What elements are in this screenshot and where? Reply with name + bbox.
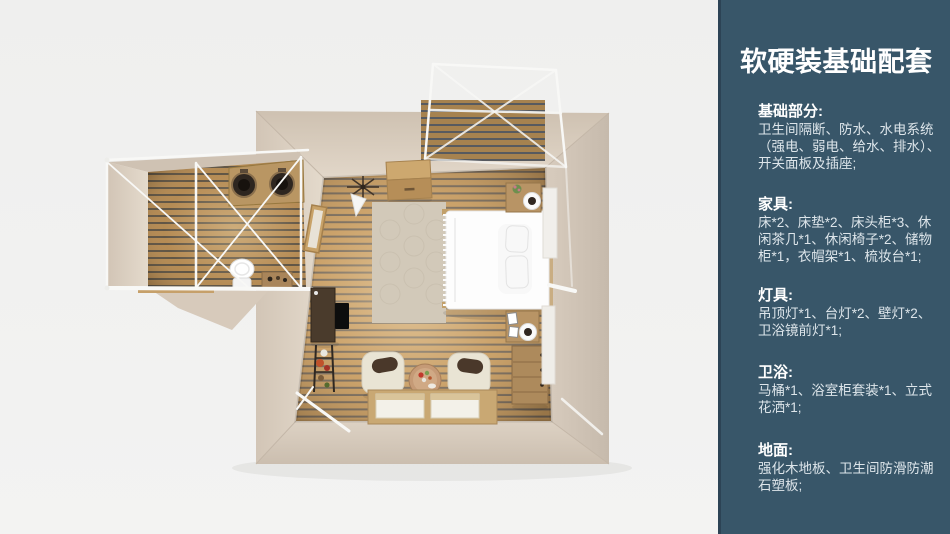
section-heading: 灯具: [758, 287, 940, 305]
faucet-icon [278, 168, 286, 172]
plant-icon [513, 185, 522, 194]
section-line: （强电、弱电、给水、排水）、 [758, 138, 940, 155]
tv-icon [335, 303, 349, 329]
section-furniture: 家具: 床*2、床垫*2、床头柜*3、休 闲茶几*1、休闲椅子*2、储物 柜*1… [758, 196, 940, 265]
section-basics: 基础部分: 卫生间隔断、防水、水电系统 （强电、弱电、给水、排水）、 开关面板及… [758, 103, 940, 172]
section-heading: 家具: [758, 196, 940, 214]
photo-frame-icon [507, 313, 517, 325]
rug [372, 202, 446, 323]
storage-cabinet [386, 160, 432, 206]
section-line: 花洒*1; [758, 399, 940, 416]
section-line: 床*2、床垫*2、床头柜*3、休 [758, 214, 940, 231]
section-line: 卫生间隔断、防水、水电系统 [758, 121, 940, 138]
corner-vanity [262, 272, 292, 288]
section-lighting: 灯具: 吊顶灯*1、台灯*2、壁灯*2、 卫浴镜前灯*1; [758, 287, 940, 339]
nightstand-top [506, 183, 541, 212]
faucet-icon [240, 169, 248, 173]
floorplan-panel [0, 0, 718, 534]
section-line: 强化木地板、卫生间防滑防潮 [758, 460, 940, 477]
section-line: 闲茶几*1、休闲椅子*2、储物 [758, 231, 940, 248]
nightstand-bottom [506, 311, 539, 342]
section-line: 石塑板; [758, 477, 940, 494]
tatami-platform [368, 390, 497, 424]
double-bed [442, 209, 553, 320]
section-heading: 地面: [758, 442, 940, 460]
photo-frame-icon [509, 327, 519, 338]
pillow [505, 225, 528, 252]
info-sidebar: 软硬装基础配套 基础部分: 卫生间隔断、防水、水电系统 （强电、弱电、给水、排水… [718, 0, 950, 534]
sidebar-title: 软硬装基础配套 [740, 47, 936, 77]
section-flooring: 地面: 强化木地板、卫生间防滑防潮 石塑板; [758, 442, 940, 494]
section-line: 吊顶灯*1、台灯*2、壁灯*2、 [758, 305, 940, 322]
flowers-icon [320, 349, 327, 356]
section-line: 开关面板及插座; [758, 155, 940, 172]
section-bathroom: 卫浴: 马桶*1、浴室柜套装*1、立式 花洒*1; [758, 364, 940, 416]
section-line: 马桶*1、浴室柜套装*1、立式 [758, 382, 940, 399]
section-line: 柜*1，衣帽架*1、梳妆台*1; [758, 248, 940, 265]
section-line: 卫浴镜前灯*1; [758, 322, 940, 339]
section-heading: 基础部分: [758, 103, 940, 121]
flowers-icon [418, 372, 423, 377]
section-heading: 卫浴: [758, 364, 940, 382]
pillow [505, 256, 528, 289]
floorplan-image [0, 0, 718, 534]
